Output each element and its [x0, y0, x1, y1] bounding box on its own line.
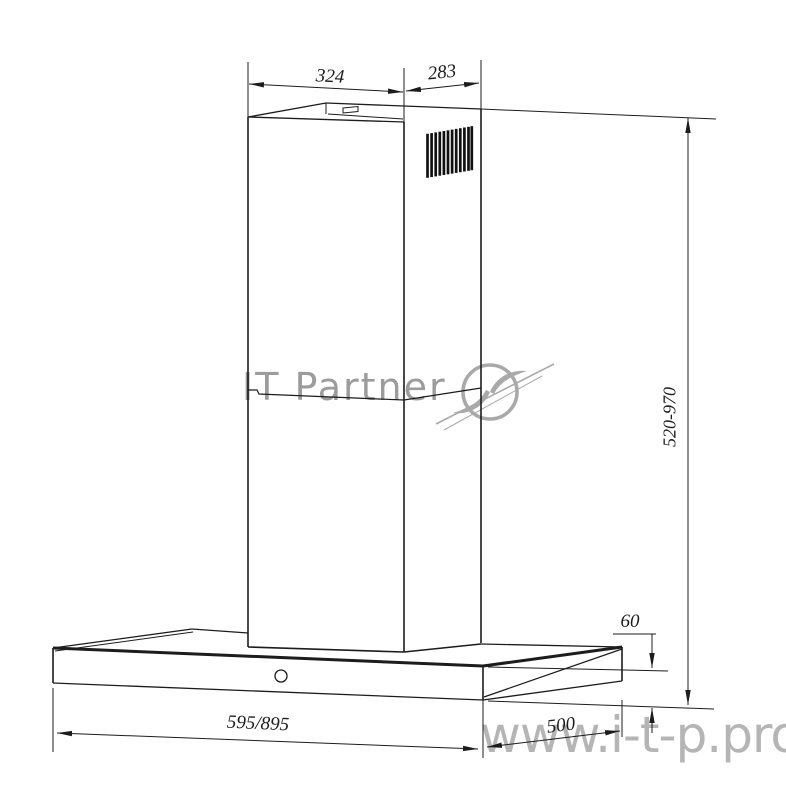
- dim-label-base-depth: 500: [546, 713, 577, 738]
- vent-grille-icon: [428, 126, 472, 178]
- chimney-duct: [248, 60, 481, 652]
- dim-283-line: [406, 83, 479, 91]
- dim-label-top-width: 324: [315, 65, 345, 88]
- dimension-lines: [53, 83, 716, 758]
- chimney-top-rim: [248, 103, 481, 122]
- hood-light-button: [275, 670, 287, 682]
- dim-label-base-width: 595/895: [226, 712, 289, 737]
- dim-label-height-range: 520-970: [660, 387, 681, 447]
- hood-base: [53, 629, 622, 700]
- dim-label-base-height: 60: [621, 611, 640, 633]
- dim-label-top-depth: 283: [427, 61, 458, 86]
- chimney-seam: [248, 388, 481, 400]
- technical-drawing-page: { "drawing": { "subject": "chimney-cooke…: [0, 0, 786, 786]
- drawing-stage: IT Partner www.i-t-p.pro: [0, 0, 786, 786]
- duct-outlet: [343, 107, 358, 114]
